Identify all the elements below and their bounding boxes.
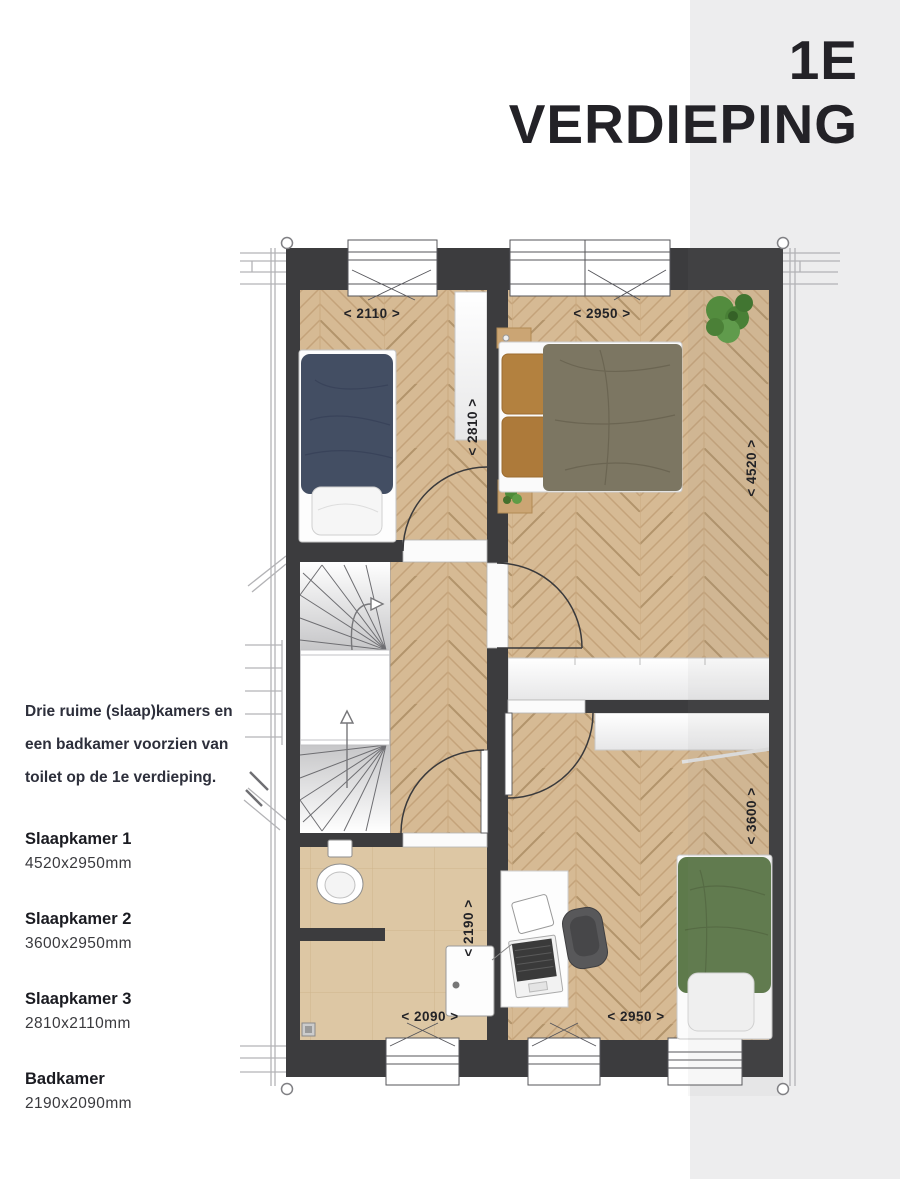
dim-bedroom2-width: < 2950 >	[607, 1009, 664, 1024]
stairwell	[300, 562, 390, 833]
landing-floor	[390, 562, 489, 833]
bed-single-blue	[299, 350, 396, 542]
dim-bedroom1-width: < 2950 >	[573, 306, 630, 321]
dim-bedroom2-depth: < 3600 >	[744, 787, 759, 844]
bedroom2-door-leaf	[505, 713, 512, 795]
floor-plan: < 2110 > < 2950 > < 2810 > < 4520 > < 36…	[0, 0, 900, 1179]
bed-double-olive	[497, 328, 682, 513]
wall-bathroom-stub	[286, 928, 385, 941]
bathroom-door-leaf	[481, 750, 488, 833]
shower-drain	[302, 1023, 315, 1036]
dim-bedroom1-depth: < 4520 >	[744, 439, 759, 496]
dim-bathroom-width: < 2090 >	[401, 1009, 458, 1024]
neighbour-outline-left	[240, 248, 286, 1086]
dim-bedroom3-width: < 2110 >	[344, 306, 401, 321]
laptop	[508, 935, 562, 998]
bedroom3-window	[348, 240, 437, 300]
dim-bathroom-depth: < 2190 >	[461, 899, 476, 956]
dim-bedroom3-depth: < 2810 >	[465, 398, 480, 455]
wall-left	[286, 248, 300, 1077]
neighbour-outline-right	[783, 248, 840, 1086]
bedroom1-window	[510, 240, 670, 300]
band-seam	[688, 248, 783, 1096]
